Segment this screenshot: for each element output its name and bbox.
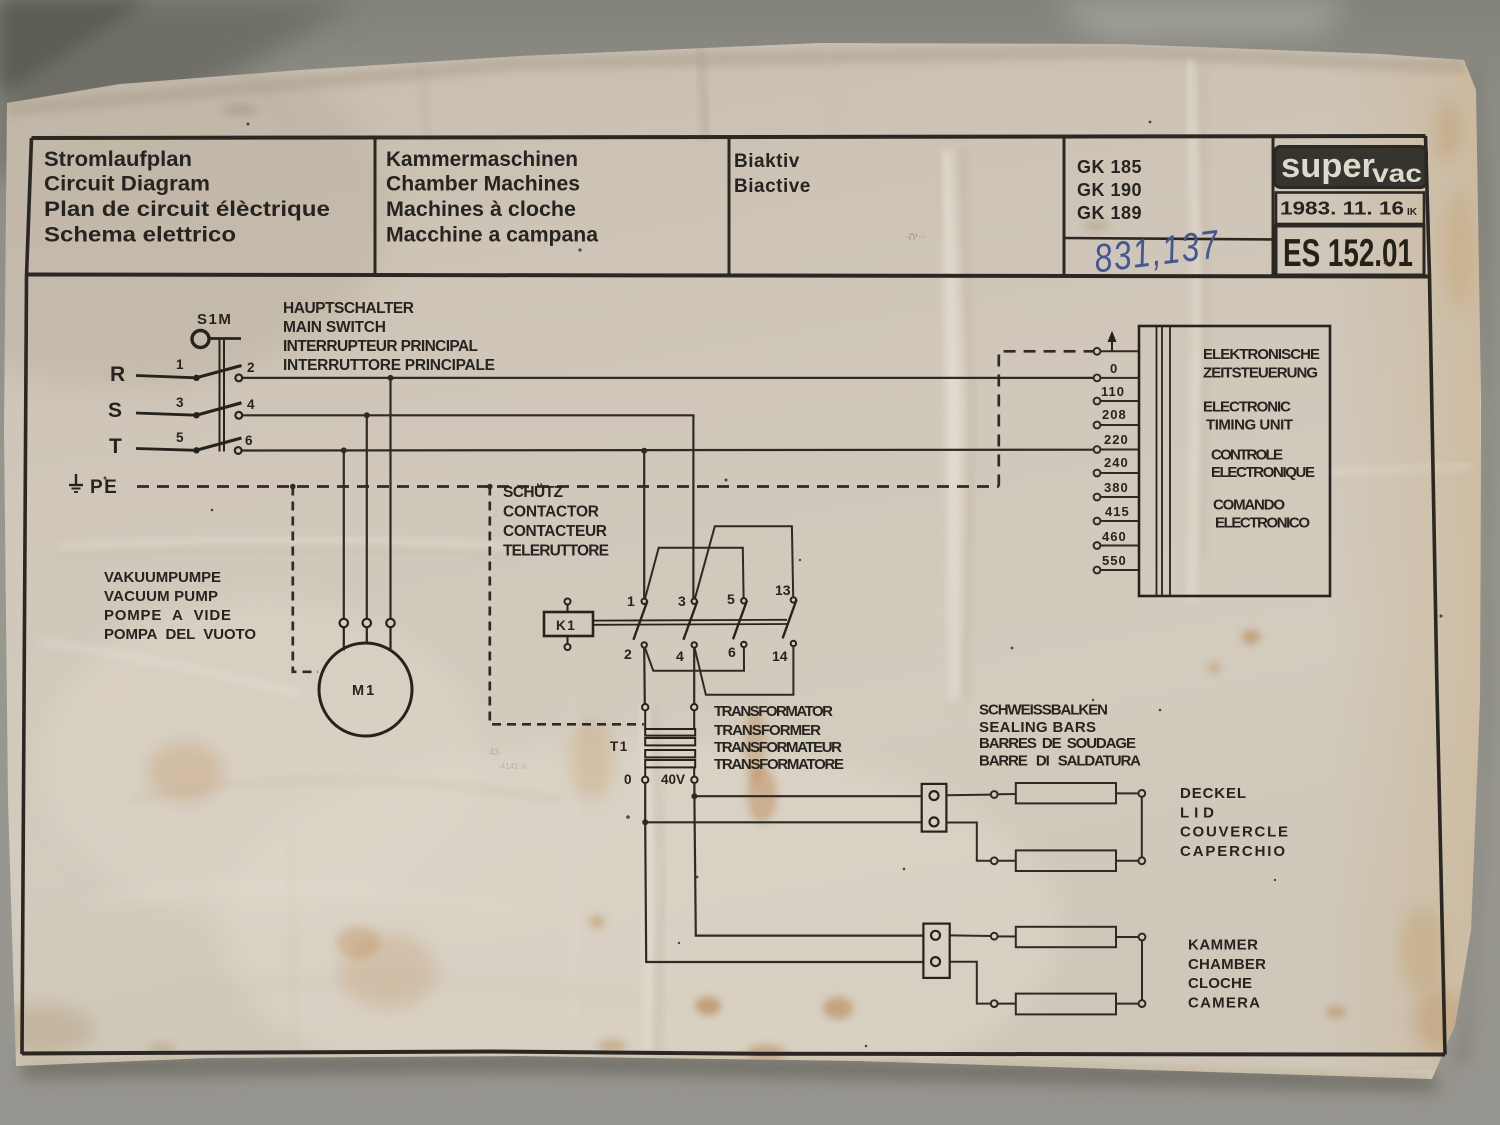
svg-text:ELEKTRONISCHE: ELEKTRONISCHE [1203,346,1320,363]
svg-text:KAMMER: KAMMER [1188,937,1258,954]
svg-text:PE: PE [90,477,118,498]
svg-text:SEALING BARS: SEALING BARS [979,719,1096,736]
svg-text:1983. 11. 16: 1983. 11. 16 [1280,198,1404,219]
svg-text:COUVERCLE: COUVERCLE [1180,824,1288,841]
svg-text:DECKEL: DECKEL [1180,785,1246,802]
svg-text:POMPE A VIDE: POMPE A VIDE [104,607,231,624]
svg-text:CONTROLE: CONTROLE [1211,447,1283,464]
svg-text:COMANDO: COMANDO [1213,497,1285,514]
svg-text:S1M: S1M [197,311,232,328]
svg-text:M1: M1 [352,683,376,699]
svg-text:BARRE DI SALDATURA: BARRE DI SALDATURA [979,753,1141,770]
svg-text:0: 0 [624,772,632,787]
svg-text:Kammermaschinen: Kammermaschinen [386,148,578,171]
svg-text:110: 110 [1101,384,1125,399]
svg-text:LID: LID [1180,805,1214,822]
svg-text:K1: K1 [556,618,576,633]
svg-text:TIMING UNIT: TIMING UNIT [1206,417,1293,434]
svg-text:·4141·ה: ·4141·ה [498,762,526,771]
svg-text:1: 1 [627,593,635,609]
svg-text:240: 240 [1104,455,1129,470]
svg-text:TRANSFORMATOR: TRANSFORMATOR [714,703,833,720]
svg-text:Plan de circuit élèctrique: Plan de circuit élèctrique [44,198,330,221]
svg-text:13: 13 [775,582,791,598]
svg-text:TRANSFORMATEUR: TRANSFORMATEUR [714,739,842,756]
svg-text:R: R [110,363,125,386]
svg-text:CHAMBER: CHAMBER [1188,956,1266,973]
svg-text:VAKUUMPUMPE: VAKUUMPUMPE [104,569,221,586]
svg-text:CONTACTEUR: CONTACTEUR [503,523,607,540]
svg-text:TRANSFORMATORE: TRANSFORMATORE [714,756,844,773]
svg-text:Macchine a campana: Macchine a campana [386,224,598,247]
svg-text:·יה··: ·יה·· [905,231,926,244]
svg-text:HAUPTSCHALTER: HAUPTSCHALTER [283,300,414,317]
svg-text:CAMERA: CAMERA [1188,995,1260,1012]
svg-text:Machines à cloche: Machines à cloche [386,198,576,221]
svg-text:Biactive: Biactive [734,176,811,197]
svg-text:INTERRUPTEUR PRINCIPAL: INTERRUPTEUR PRINCIPAL [283,338,478,355]
svg-text:CLOCHE: CLOCHE [1188,975,1252,992]
svg-text:380: 380 [1104,480,1129,495]
svg-text:GK 185: GK 185 [1077,157,1142,177]
svg-text:IK: IK [1407,207,1418,218]
svg-text:3: 3 [176,395,184,410]
svg-text:MAIN SWITCH: MAIN SWITCH [283,319,386,336]
svg-text:vac: vac [1372,160,1422,188]
svg-text:ES 152.01: ES 152.01 [1283,232,1413,275]
svg-text:Biaktiv: Biaktiv [734,151,800,172]
svg-text:VACUUM PUMP: VACUUM PUMP [104,588,218,605]
svg-text:1: 1 [176,357,184,372]
svg-text:CONTACTOR: CONTACTOR [503,504,599,521]
svg-text:TELERUTTORE: TELERUTTORE [503,543,609,560]
svg-text:SCHWEISSBALKEN: SCHWEISSBALKEN [979,702,1108,719]
svg-text:super: super [1281,147,1375,185]
svg-text:T: T [109,435,122,458]
svg-text:14: 14 [772,648,788,664]
svg-text:ELECTRONIC: ELECTRONIC [1203,399,1291,416]
svg-text:415: 415 [1105,504,1130,519]
svg-text:220: 220 [1104,432,1129,447]
svg-text:S: S [108,399,122,422]
svg-text:GK 190: GK 190 [1077,180,1142,200]
svg-text:ZEITSTEUERUNG: ZEITSTEUERUNG [1203,365,1318,382]
svg-text:ELECTRONIQUE: ELECTRONIQUE [1211,464,1315,481]
svg-text:Chamber Machines: Chamber Machines [386,173,580,196]
svg-text:4: 4 [247,397,255,412]
svg-text:T1: T1 [610,739,629,754]
svg-text:0: 0 [1110,361,1118,376]
svg-text:Schema elettrico: Schema elettrico [44,224,236,247]
svg-text:2: 2 [247,360,255,375]
svg-text:5: 5 [176,430,184,445]
svg-text:208: 208 [1102,407,1127,422]
svg-text:2: 2 [624,646,632,662]
svg-text:550: 550 [1102,553,1127,568]
svg-text:Circuit Diagram: Circuit Diagram [44,173,210,196]
svg-text:3: 3 [678,593,686,609]
svg-text:CAPERCHIO: CAPERCHIO [1180,843,1285,860]
svg-text:460: 460 [1102,529,1127,544]
svg-text:Stromlaufplan: Stromlaufplan [44,148,192,171]
svg-text:INTERRUTTORE PRINCIPALE: INTERRUTTORE PRINCIPALE [283,357,495,374]
svg-text:SCHÜTZ: SCHÜTZ [503,484,564,501]
svg-text:BARRES DE SOUDAGE: BARRES DE SOUDAGE [979,735,1136,752]
svg-text:40V: 40V [661,772,685,787]
svg-text:POMPA DEL VUOTO: POMPA DEL VUOTO [104,626,256,643]
svg-text:GK 189: GK 189 [1077,203,1142,223]
svg-text:4: 4 [676,648,684,664]
svg-text:TRANSFORMER: TRANSFORMER [714,722,821,739]
svg-text:6: 6 [728,644,736,660]
svg-text:5: 5 [727,591,735,607]
svg-text:43·: 43· [489,747,502,757]
svg-text:ELECTRONICO: ELECTRONICO [1215,515,1310,532]
svg-text:6: 6 [245,433,253,448]
